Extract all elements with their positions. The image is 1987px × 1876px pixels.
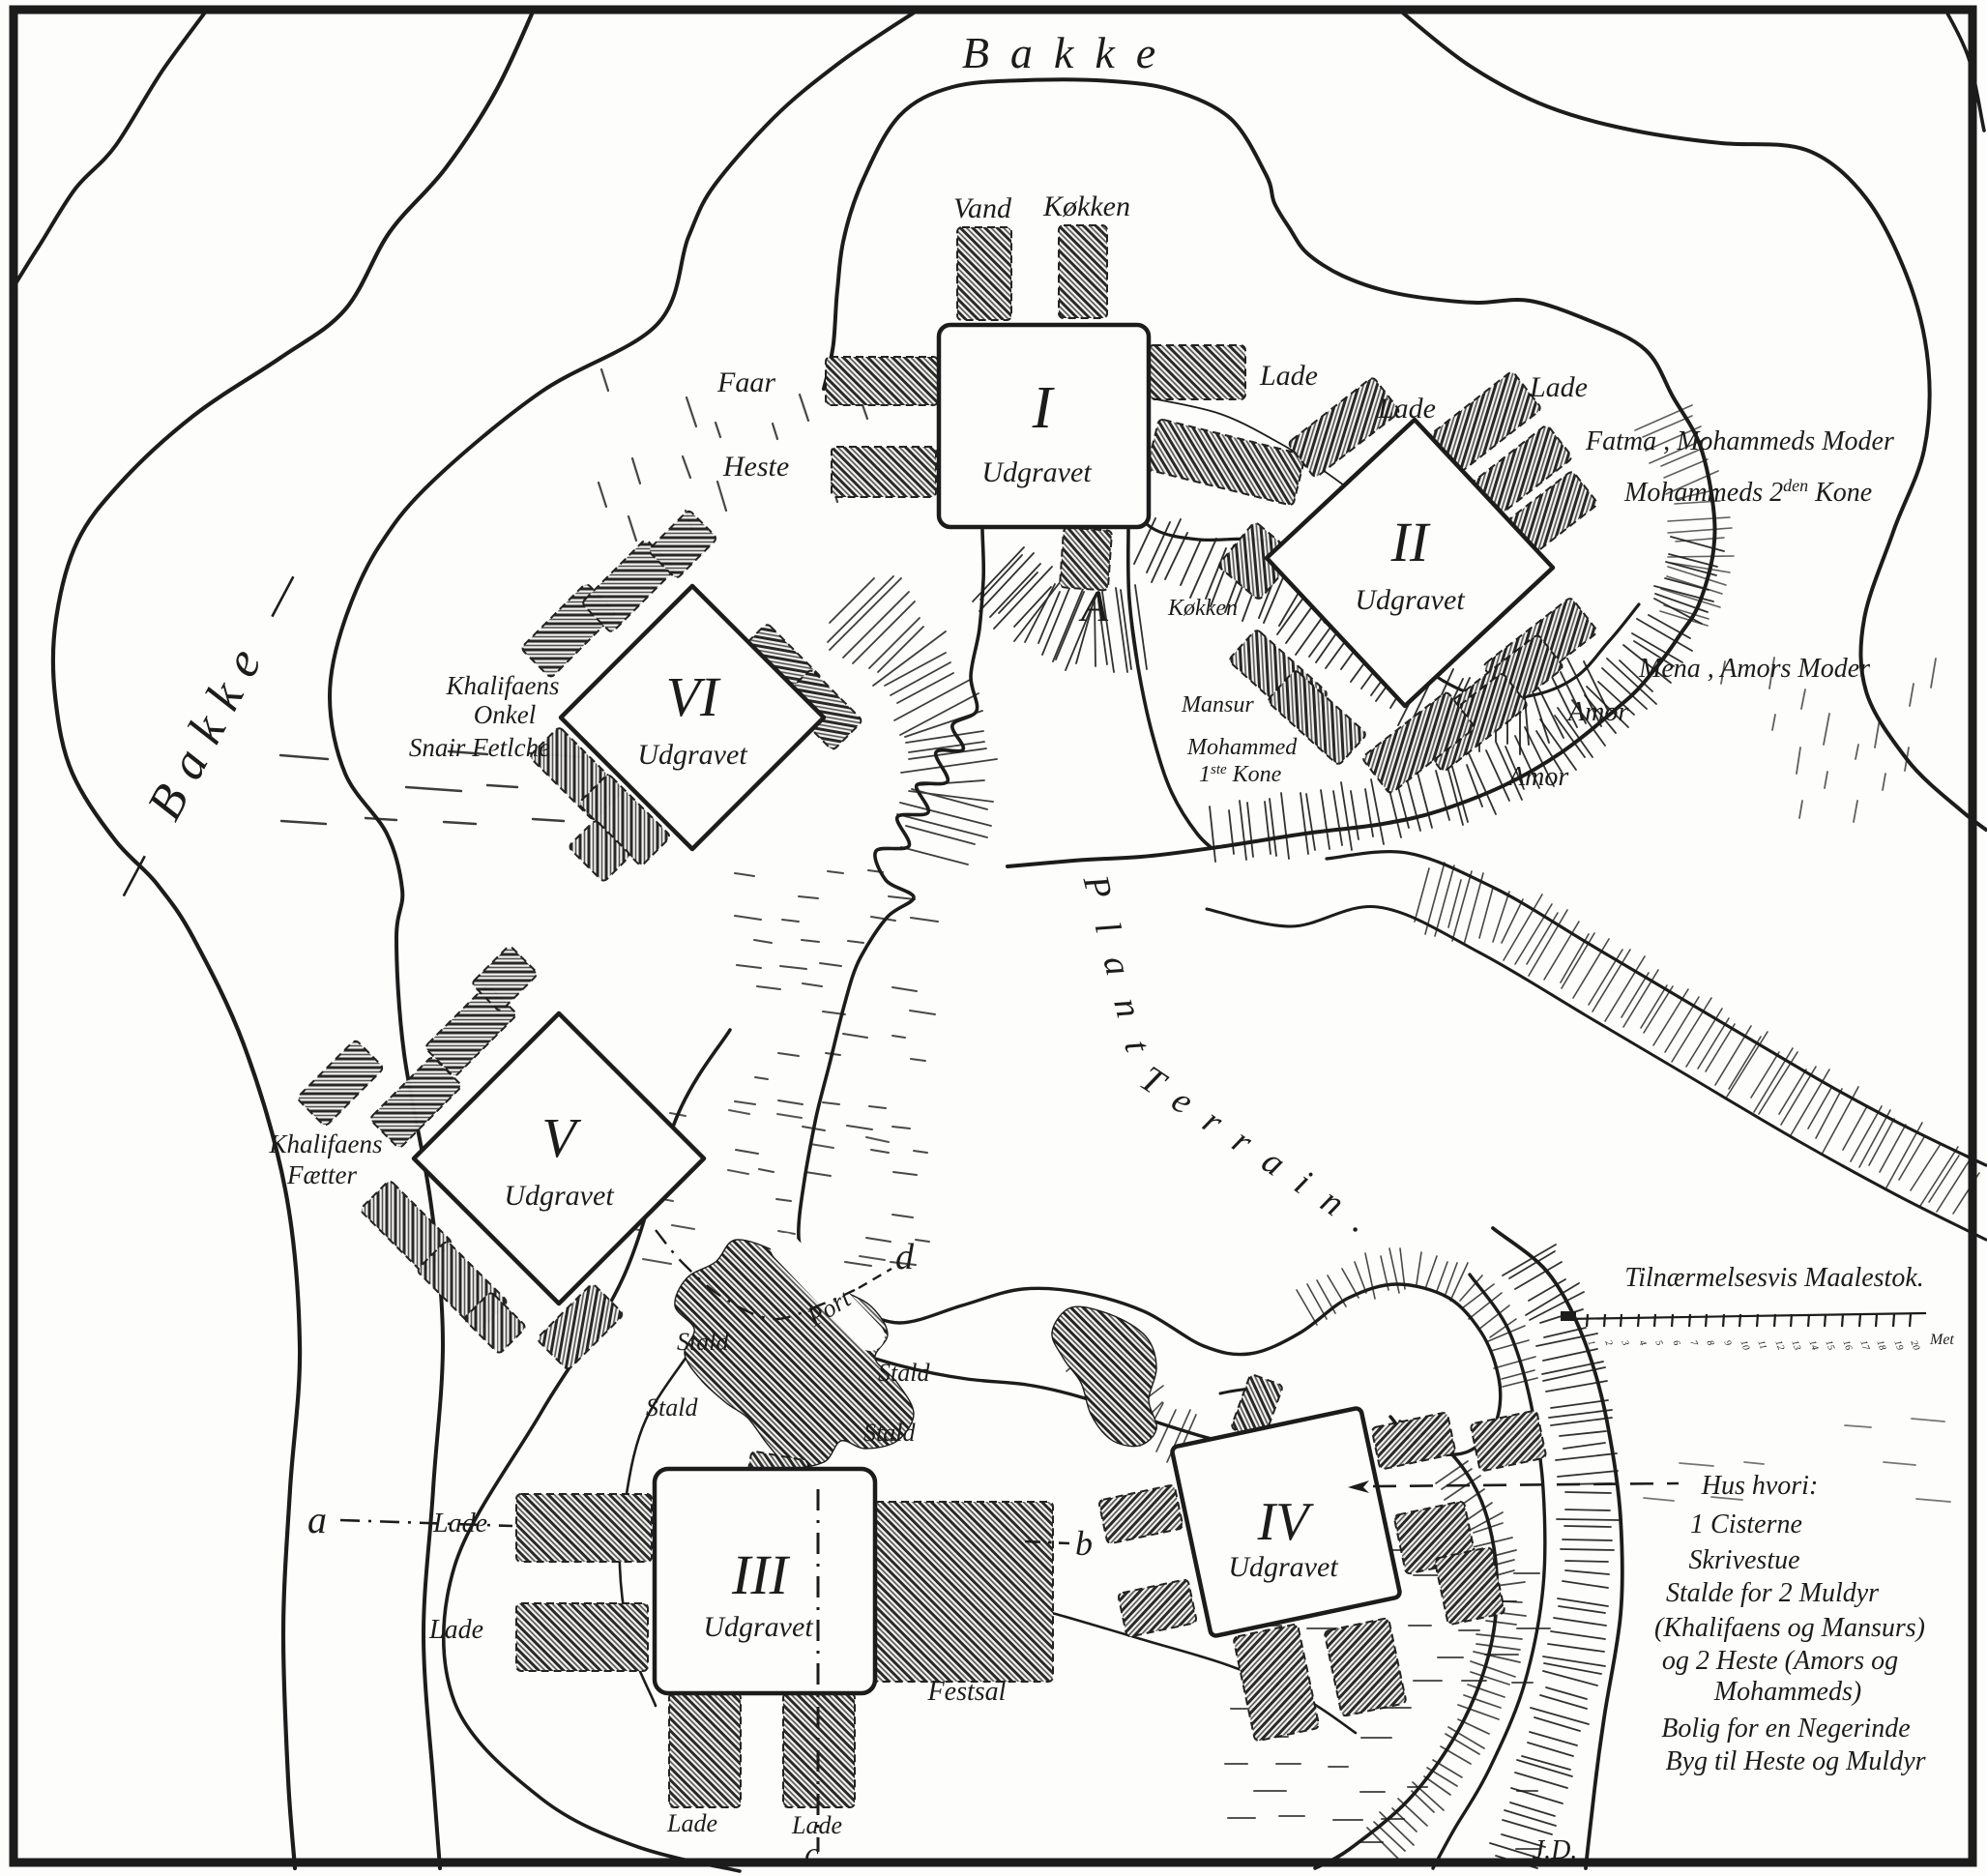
svg-text:Udgravet: Udgravet <box>637 739 747 771</box>
svg-text:Stalde for 2 Muldyr: Stalde for 2 Muldyr <box>1666 1578 1879 1608</box>
svg-text:Stald: Stald <box>677 1328 729 1356</box>
svg-text:Mohammed: Mohammed <box>1186 735 1298 760</box>
svg-text:Amor: Amor <box>1506 762 1568 792</box>
svg-text:Fatma , Mohammeds Moder: Fatma , Mohammeds Moder <box>1585 426 1894 456</box>
svg-text:Lade: Lade <box>428 1615 483 1645</box>
svg-text:1 Cisterne: 1 Cisterne <box>1690 1510 1802 1539</box>
svg-text:Faar: Faar <box>716 366 775 398</box>
svg-text:Bolig for en Negerinde: Bolig for en Negerinde <box>1661 1714 1910 1744</box>
svg-text:Khalifaens: Khalifaens <box>268 1129 382 1158</box>
svg-text:Lade: Lade <box>791 1811 842 1839</box>
svg-text:Udgravet: Udgravet <box>703 1611 813 1643</box>
svg-text:Køkken: Køkken <box>1042 191 1130 222</box>
svg-text:IV: IV <box>1257 1492 1315 1552</box>
svg-text:Udgravet: Udgravet <box>981 456 1092 488</box>
svg-text:Stald: Stald <box>863 1419 916 1447</box>
svg-text:Stald: Stald <box>878 1359 930 1387</box>
svg-text:Lade: Lade <box>432 1509 487 1539</box>
svg-text:c: c <box>804 1836 819 1872</box>
svg-text:og 2 Heste (Amors og: og 2 Heste (Amors og <box>1662 1646 1898 1676</box>
svg-text:Met: Met <box>1929 1332 1954 1348</box>
svg-text:VI: VI <box>666 665 721 728</box>
svg-text:Khalifaens: Khalifaens <box>445 671 559 700</box>
svg-text:III: III <box>731 1543 791 1606</box>
svg-text:Onkel: Onkel <box>474 700 536 729</box>
svg-text:J.D.: J.D. <box>1533 1835 1578 1865</box>
svg-text:Køkken: Køkken <box>1167 596 1238 621</box>
svg-text:Amor: Amor <box>1566 697 1628 727</box>
svg-text:Udgravet: Udgravet <box>1355 584 1465 616</box>
svg-text:Mansur: Mansur <box>1181 692 1254 718</box>
svg-text:Mohammeds): Mohammeds) <box>1713 1677 1861 1707</box>
svg-text:II: II <box>1390 511 1431 573</box>
svg-text:Lade: Lade <box>1377 393 1436 425</box>
svg-text:Vand: Vand <box>953 192 1012 224</box>
svg-text:Lade: Lade <box>1529 371 1588 403</box>
svg-text:Lade: Lade <box>1259 360 1318 392</box>
svg-text:Hus hvori:: Hus hvori: <box>1701 1471 1819 1501</box>
svg-text:Tilnærmelsesvis Maalestok.: Tilnærmelsesvis Maalestok. <box>1624 1263 1924 1293</box>
svg-text:Mena , Amors Moder: Mena , Amors Moder <box>1638 654 1870 684</box>
svg-text:b: b <box>1075 1524 1093 1563</box>
svg-text:Mohammeds 2den Kone: Mohammeds 2den Kone <box>1623 476 1872 508</box>
svg-text:Udgravet: Udgravet <box>1228 1551 1338 1583</box>
svg-text:Lade: Lade <box>666 1809 717 1837</box>
svg-text:Fætter: Fætter <box>286 1160 357 1189</box>
svg-text:A: A <box>1078 581 1109 630</box>
svg-text:Stald: Stald <box>646 1393 698 1422</box>
svg-text:Festsal: Festsal <box>927 1677 1007 1707</box>
svg-text:Heste: Heste <box>722 451 789 483</box>
svg-text:d: d <box>895 1237 915 1277</box>
svg-text:Snair Fetlche: Snair Fetlche <box>409 733 550 762</box>
svg-text:(Khalifaens og Mansurs): (Khalifaens og Mansurs) <box>1654 1613 1925 1643</box>
svg-text:a: a <box>307 1498 327 1541</box>
svg-text:Bakke: Bakke <box>962 28 1177 77</box>
svg-text:I: I <box>1032 375 1056 441</box>
svg-text:Skrivestue: Skrivestue <box>1688 1545 1799 1575</box>
svg-text:Udgravet: Udgravet <box>504 1180 614 1212</box>
svg-text:Byg til Heste og Muldyr: Byg til Heste og Muldyr <box>1665 1746 1925 1776</box>
